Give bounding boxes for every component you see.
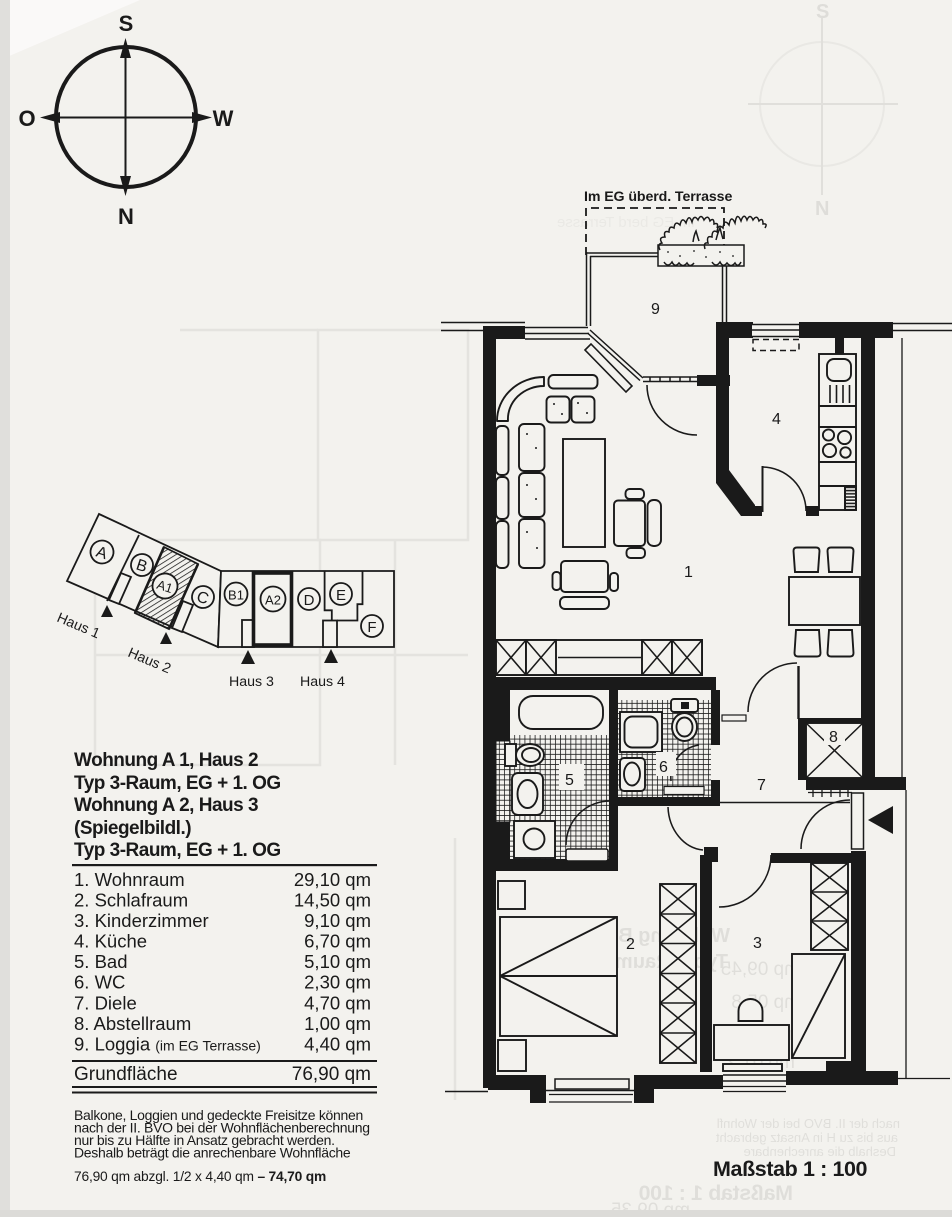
- svg-text:B1: B1: [228, 588, 244, 603]
- svg-text:4: 4: [772, 411, 781, 428]
- svg-text:mp 09,45: mp 09,45: [721, 959, 800, 980]
- svg-text:1: 1: [684, 564, 693, 581]
- svg-text:3. Kinderzimmer: 3. Kinderzimmer: [74, 910, 209, 931]
- svg-text:nach der II. BVO bei der Wohnf: nach der II. BVO bei der Wohnfl: [717, 1116, 900, 1131]
- svg-text:2. Schlafraum: 2. Schlafraum: [74, 890, 188, 911]
- svg-text:Im EG überd. Terrasse: Im EG überd. Terrasse: [584, 189, 732, 205]
- svg-text:6,70 qm: 6,70 qm: [304, 931, 371, 952]
- svg-text:Haus 3: Haus 3: [229, 674, 274, 690]
- svg-text:Typ 3-Raum, EG + 1. OG: Typ 3-Raum, EG + 1. OG: [74, 840, 281, 861]
- svg-text:Maßstab 1 : 100: Maßstab 1 : 100: [713, 1157, 868, 1181]
- svg-text:1,00 qm: 1,00 qm: [304, 1013, 371, 1034]
- svg-text:8. Abstellraum: 8. Abstellraum: [74, 1013, 191, 1034]
- svg-text:76,90 qm: 76,90 qm: [292, 1064, 371, 1085]
- svg-text:A2: A2: [265, 593, 281, 608]
- svg-text:(Spiegelbildl.): (Spiegelbildl.): [74, 818, 191, 839]
- svg-text:7. Diele: 7. Diele: [74, 993, 137, 1014]
- svg-text:Deshalb beträgt die anrechenba: Deshalb beträgt die anrechenbare Wohnflä…: [74, 1145, 351, 1161]
- svg-text:6. WC: 6. WC: [74, 972, 125, 993]
- svg-text:9. Loggia (im EG Terrasse): 9. Loggia (im EG Terrasse): [74, 1034, 261, 1055]
- svg-text:W: W: [213, 106, 234, 131]
- svg-text:N: N: [118, 204, 134, 229]
- svg-text:O: O: [18, 106, 35, 131]
- svg-text:Grundfläche: Grundfläche: [74, 1064, 178, 1085]
- svg-text:Typ 3-Raum, EG + 1. OG: Typ 3-Raum, EG + 1. OG: [74, 773, 281, 794]
- svg-text:Wohnung A 1, Haus 2: Wohnung A 1, Haus 2: [74, 750, 258, 771]
- svg-text:5. Bad: 5. Bad: [74, 951, 128, 972]
- svg-text:aus bis zu H in Ansatz gebrach: aus bis zu H in Ansatz gebracht: [716, 1130, 898, 1145]
- svg-text:Wohnung A 2, Haus 3: Wohnung A 2, Haus 3: [74, 795, 258, 816]
- svg-text:7: 7: [757, 777, 766, 794]
- svg-text:E: E: [336, 587, 346, 604]
- svg-text:76,90 qm abzgl. 1/2 x 4,40 qm: 76,90 qm abzgl. 1/2 x 4,40 qm – 74,70 qm: [74, 1169, 326, 1184]
- svg-text:S: S: [816, 1, 829, 23]
- svg-text:9: 9: [651, 301, 660, 318]
- svg-text:N: N: [815, 198, 829, 220]
- svg-text:8: 8: [829, 729, 838, 746]
- svg-text:6: 6: [659, 759, 668, 776]
- svg-text:29,10 qm: 29,10 qm: [294, 869, 371, 890]
- svg-text:5: 5: [565, 772, 574, 789]
- svg-text:2: 2: [626, 936, 635, 953]
- svg-text:4. Küche: 4. Küche: [74, 931, 147, 952]
- svg-text:3: 3: [753, 935, 762, 952]
- svg-text:4,40 qm: 4,40 qm: [304, 1034, 371, 1055]
- svg-text:Haus 4: Haus 4: [300, 674, 345, 690]
- svg-text:9,10 qm: 9,10 qm: [304, 910, 371, 931]
- svg-text:14,50 qm: 14,50 qm: [294, 890, 371, 911]
- svg-text:4,70 qm: 4,70 qm: [304, 993, 371, 1014]
- svg-text:D: D: [304, 592, 315, 609]
- svg-text:S: S: [119, 11, 134, 36]
- svg-text:F: F: [367, 619, 376, 636]
- svg-text:1. Wohnraum: 1. Wohnraum: [74, 869, 185, 890]
- svg-text:5,10 qm: 5,10 qm: [304, 951, 371, 972]
- svg-text:2,30 qm: 2,30 qm: [304, 972, 371, 993]
